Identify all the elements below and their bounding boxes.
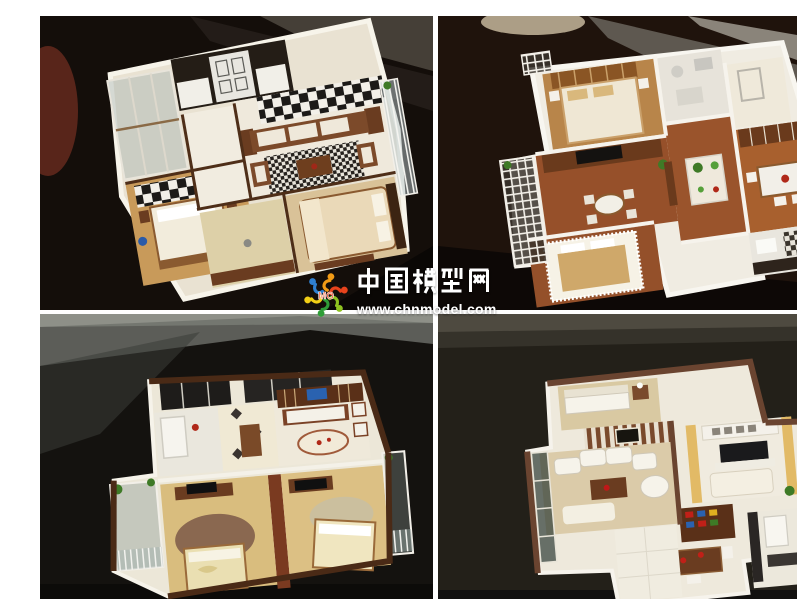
center-hall — [218, 402, 279, 471]
kitchen — [200, 198, 296, 287]
photo-bottom-left-image — [40, 314, 433, 599]
balcony-lounge — [558, 378, 661, 431]
small-balcony — [521, 51, 552, 75]
left-bedroom — [160, 475, 277, 594]
tv-lounge — [686, 416, 797, 504]
photo-bottom-left — [40, 314, 433, 599]
watermark-text-block: 中国模型网 — [357, 266, 493, 317]
display-cabinet — [679, 504, 736, 543]
left-balcony — [110, 478, 164, 571]
curved-sofa — [632, 452, 657, 470]
front-door — [209, 50, 256, 102]
photo-bottom-right — [438, 314, 797, 599]
bathroom — [657, 49, 729, 121]
glyph-wang — [470, 270, 489, 292]
glyph-zhong — [360, 268, 377, 294]
console — [686, 154, 728, 205]
photo-bottom-right-image — [438, 314, 797, 599]
glyph-guo — [387, 269, 407, 292]
site-logo: MO — [299, 266, 353, 324]
dining-table — [757, 160, 797, 197]
console — [239, 424, 262, 458]
tv — [306, 388, 327, 401]
glyph-mo — [413, 268, 436, 293]
daybed — [710, 468, 774, 497]
photo-collage: MO 中国模型网 — [0, 0, 797, 599]
model-bottom-right — [521, 357, 797, 599]
logo-text: MO — [318, 291, 334, 302]
living-room — [272, 382, 370, 466]
kitchen — [747, 507, 797, 588]
site-url: www.chnmodel.com — [357, 301, 493, 317]
picture-frame — [616, 428, 640, 444]
bedroom — [542, 59, 665, 150]
glyph-xing — [442, 268, 462, 291]
site-name-glyphs — [357, 266, 493, 296]
living-room — [539, 442, 678, 535]
tile-floor — [614, 525, 682, 599]
kitchen — [154, 407, 223, 476]
model-top-right — [486, 16, 797, 310]
watermark: MO 中国模型网 — [299, 266, 493, 324]
